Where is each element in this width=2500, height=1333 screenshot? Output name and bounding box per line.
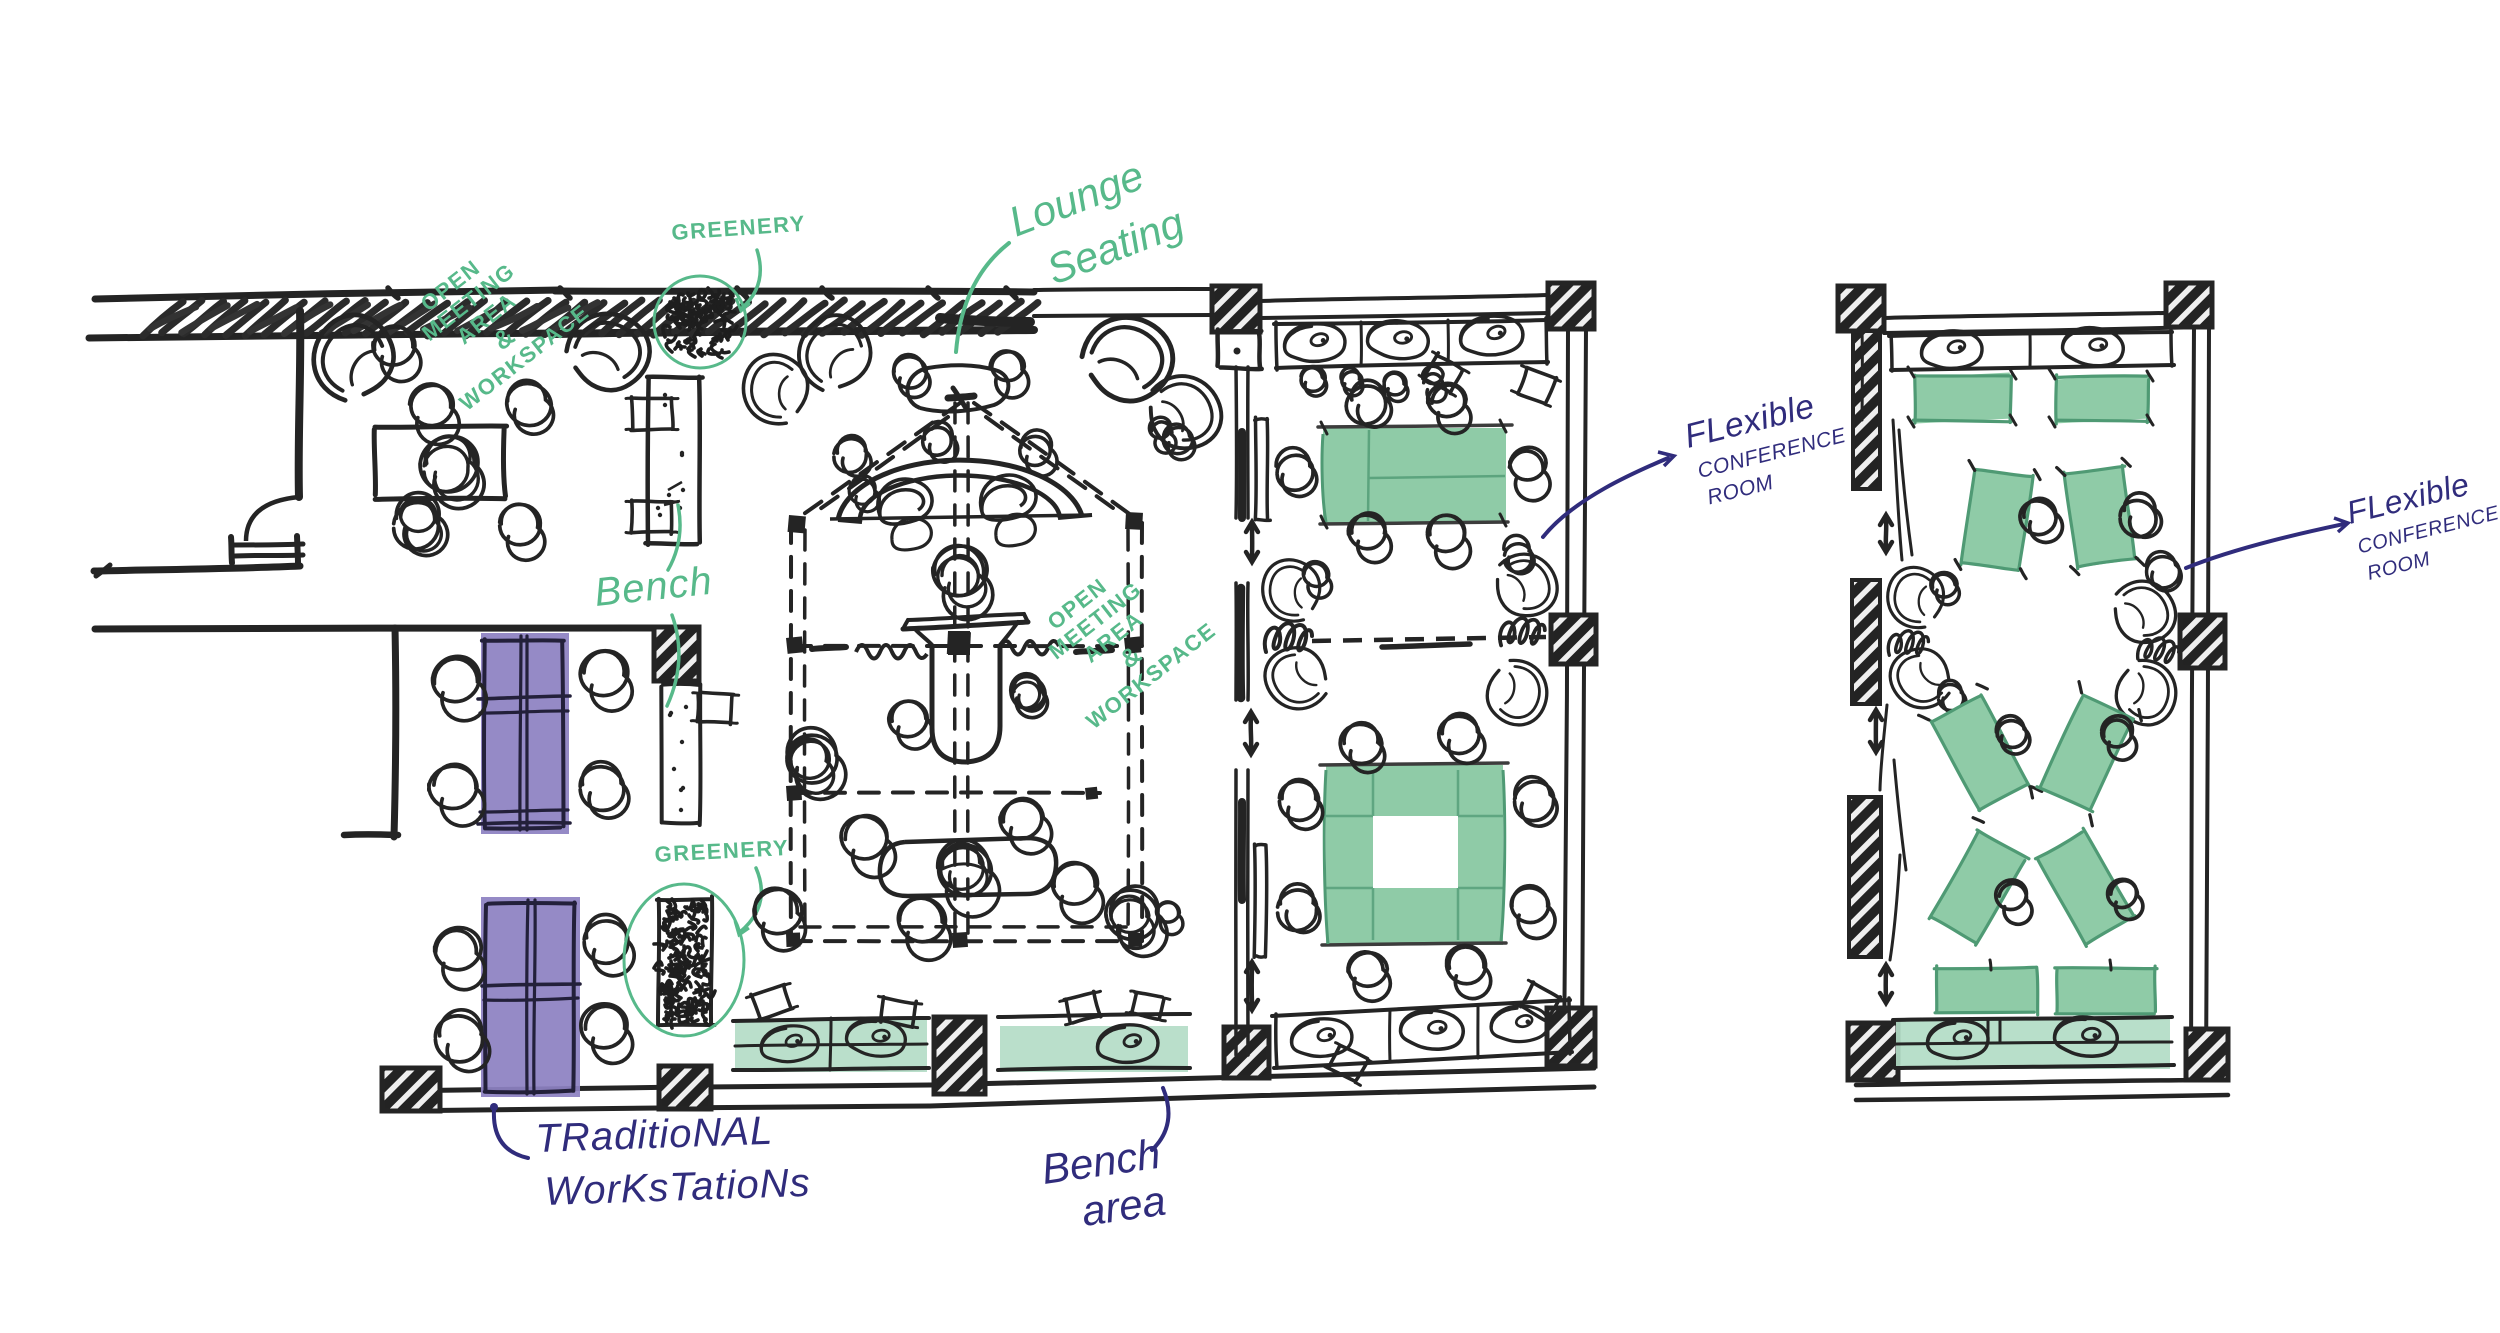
- svg-text:TRaditioNAL: TRaditioNAL: [535, 1109, 774, 1161]
- svg-text:WorKsTatioNs: WorKsTatioNs: [544, 1161, 812, 1214]
